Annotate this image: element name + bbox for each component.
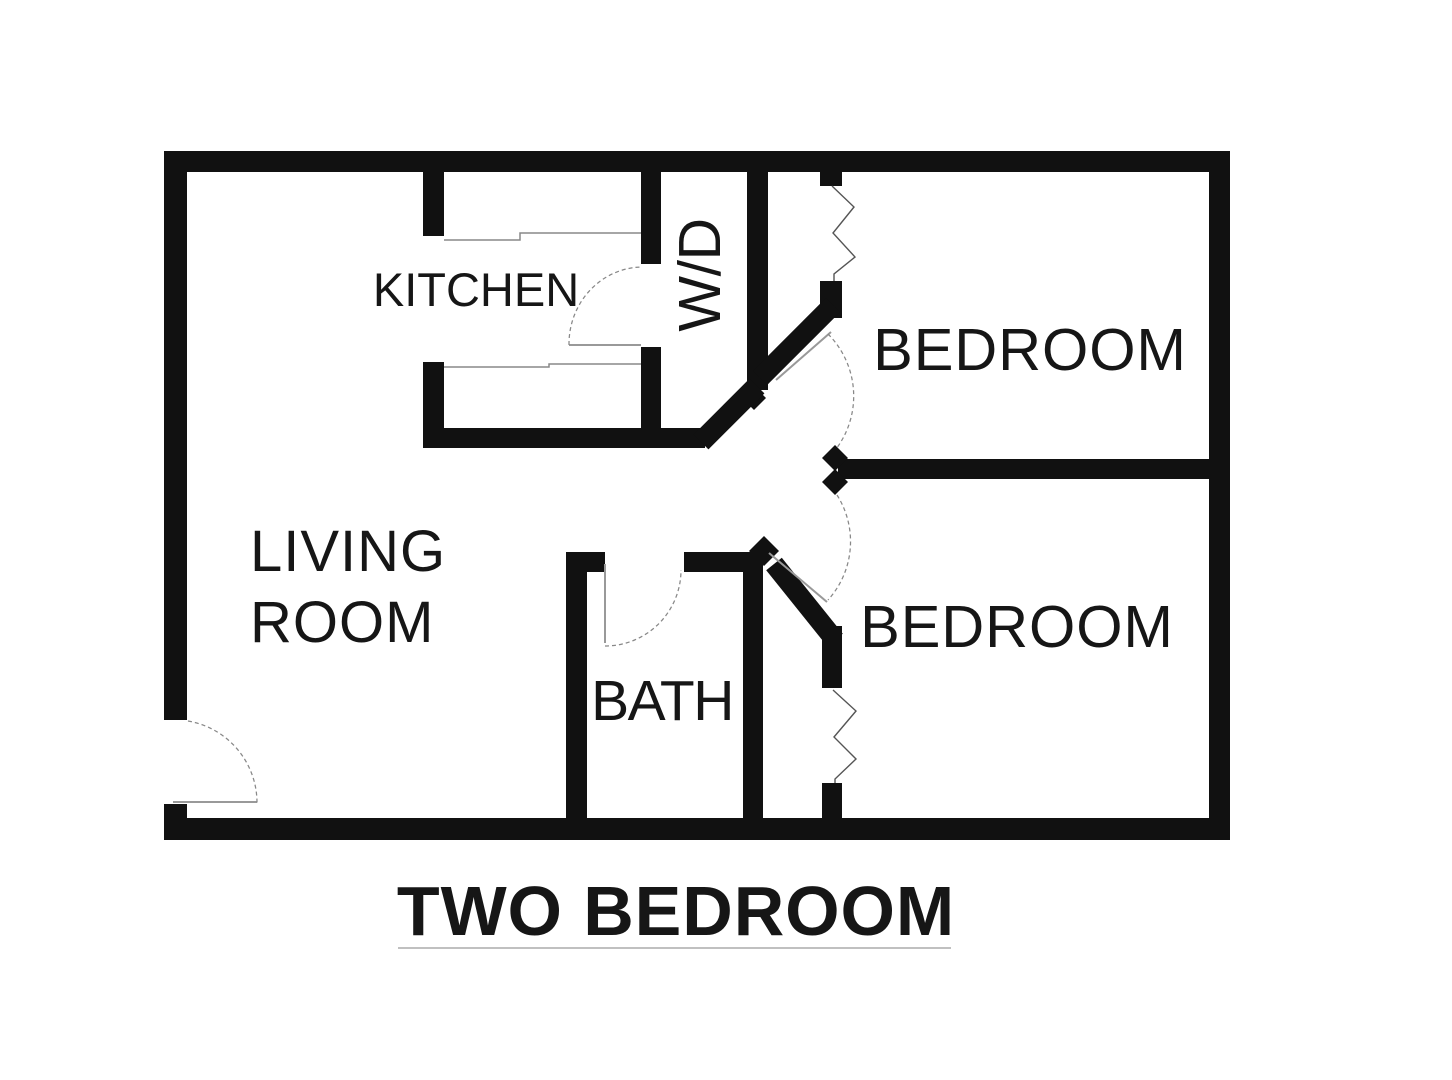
svg-text:LIVING: LIVING: [250, 519, 446, 584]
svg-text:BEDROOM: BEDROOM: [860, 593, 1174, 660]
svg-text:BATH: BATH: [591, 669, 733, 733]
svg-text:TWO BEDROOM: TWO BEDROOM: [397, 872, 955, 950]
svg-text:BEDROOM: BEDROOM: [873, 316, 1187, 383]
svg-text:W/D: W/D: [667, 218, 733, 331]
svg-text:KITCHEN: KITCHEN: [373, 263, 579, 316]
svg-text:ROOM: ROOM: [250, 590, 434, 655]
